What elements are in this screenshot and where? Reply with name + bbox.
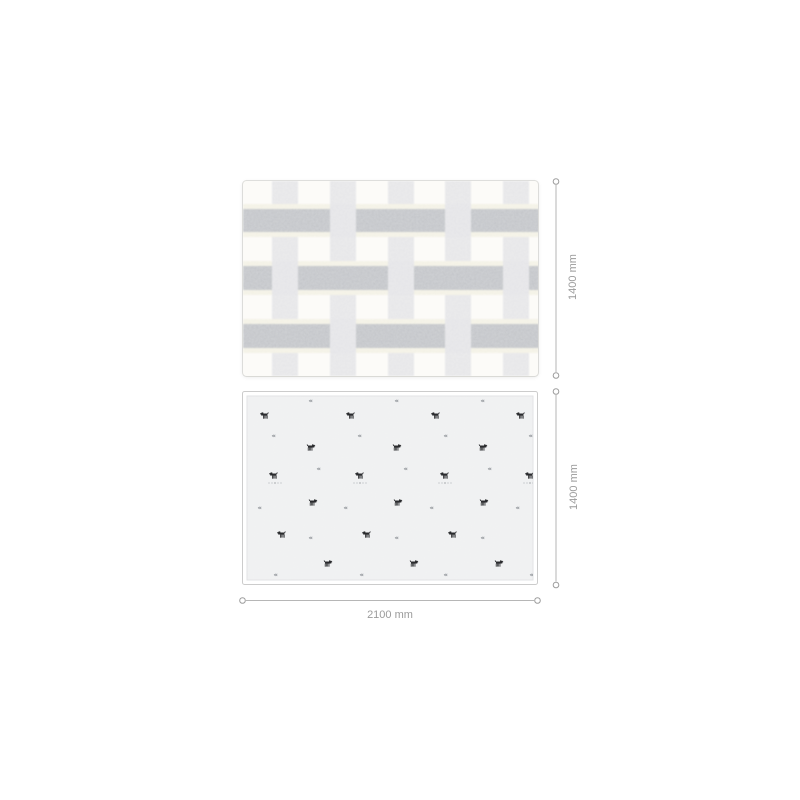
svg-text:1400 mm: 1400 mm	[568, 464, 580, 510]
svg-text:2100 mm: 2100 mm	[367, 609, 413, 621]
svg-text:1400 mm: 1400 mm	[567, 254, 579, 300]
